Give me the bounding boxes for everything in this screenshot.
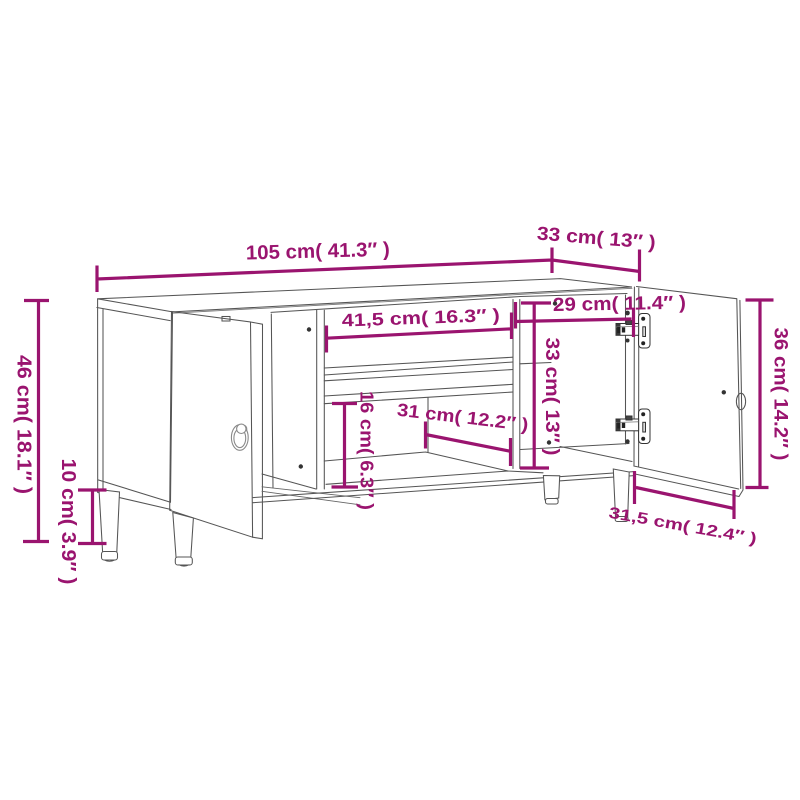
svg-text:46 cm( 18.1″ ): 46 cm( 18.1″ ) bbox=[13, 355, 36, 494]
svg-text:33 cm( 13″ ): 33 cm( 13″ ) bbox=[541, 338, 562, 456]
svg-text:29 cm( 11.4″ ): 29 cm( 11.4″ ) bbox=[553, 293, 686, 316]
svg-text:10 cm( 3.9″ ): 10 cm( 3.9″ ) bbox=[57, 459, 80, 585]
svg-text:36 cm( 14.2″ ): 36 cm( 14.2″ ) bbox=[769, 328, 791, 461]
svg-text:16 cm( 6.3″ ): 16 cm( 6.3″ ) bbox=[357, 391, 378, 510]
svg-text:105 cm( 41.3″ ): 105 cm( 41.3″ ) bbox=[246, 239, 391, 265]
